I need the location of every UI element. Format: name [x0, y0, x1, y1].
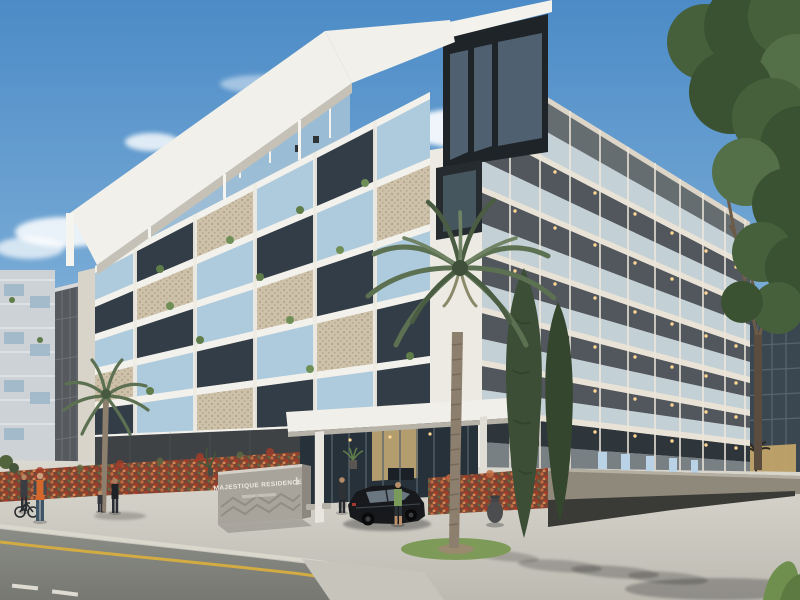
- canopy-column-left: [315, 431, 324, 523]
- building-render-scene: MAJESTIQUE RESIDENCE: [0, 0, 800, 600]
- taillight: [352, 503, 356, 506]
- background-tower-dark: [55, 282, 80, 478]
- canopy-column-right: [480, 416, 487, 478]
- background-building-left: [0, 270, 55, 480]
- left-facade-side-return: [78, 268, 95, 471]
- black-sedan-car: [348, 485, 425, 526]
- render-viewport: MAJESTIQUE RESIDENCE: [0, 0, 800, 600]
